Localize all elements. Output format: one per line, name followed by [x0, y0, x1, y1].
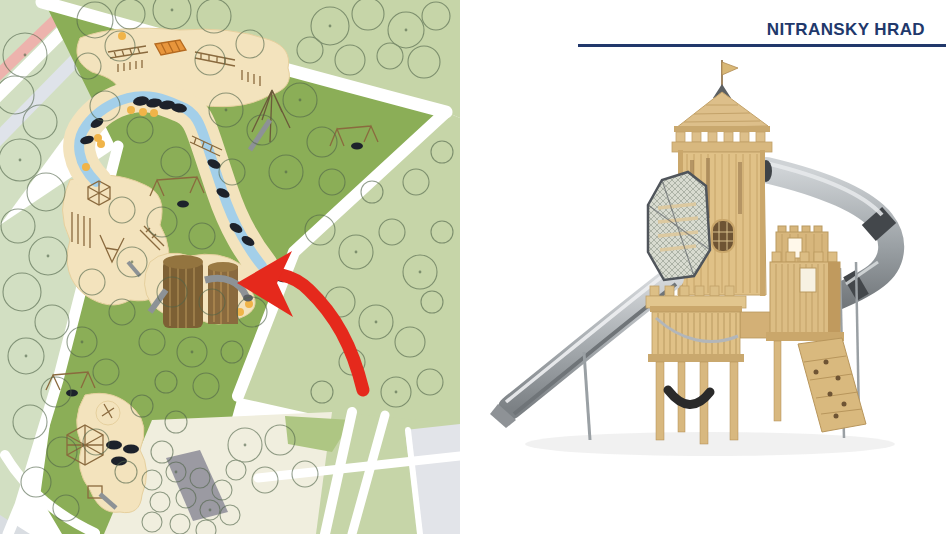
castle-playground-image — [470, 55, 950, 534]
page-title: NITRANSKY HRAD — [767, 20, 925, 40]
mid-platform — [646, 286, 774, 444]
tower-window — [712, 220, 734, 252]
roof — [676, 92, 768, 128]
climbing-net-pod — [648, 172, 710, 280]
flag — [722, 62, 738, 75]
battlements — [676, 132, 765, 142]
climbing-ramp — [798, 338, 866, 432]
ground-shadow — [525, 432, 895, 456]
lower-tower-window — [800, 268, 816, 292]
site-plan-map-panel — [0, 0, 460, 534]
presentation-slide: NITRANSKY HRAD — [0, 0, 950, 534]
site-plan-map — [0, 0, 460, 534]
header-rule — [578, 44, 946, 47]
